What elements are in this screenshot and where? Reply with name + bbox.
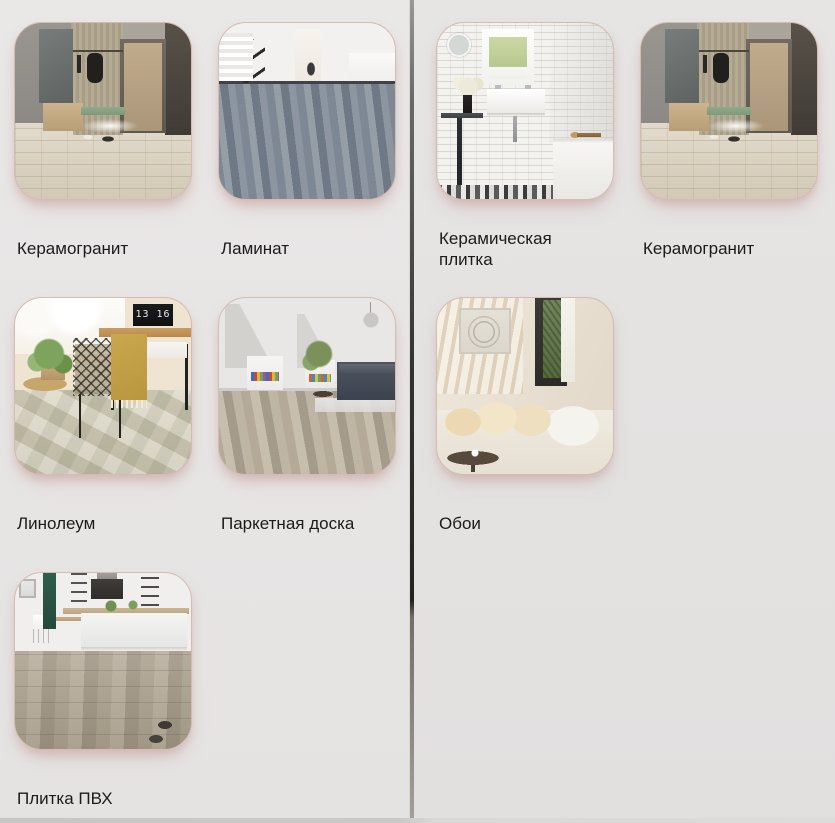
material-label: Паркетная доска: [221, 513, 354, 534]
material-item: Паркетная доска: [218, 297, 396, 572]
material-tile-parquet[interactable]: [218, 297, 396, 475]
material-item: Ламинат: [218, 22, 396, 297]
material-tile-hallway[interactable]: [14, 22, 192, 200]
material-tile-hallway[interactable]: [640, 22, 818, 200]
material-item: 13 16 Линолеум: [14, 297, 192, 572]
material-tile-linoleum[interactable]: 13 16: [14, 297, 192, 475]
left-screenshot-panel: Керамогранит Ламинат 13 16 Линолеум Парк…: [0, 0, 409, 823]
material-label-zone: Линолеум: [14, 475, 192, 572]
material-label-zone: Паркетная доска: [218, 475, 396, 572]
material-tile-wallpaper[interactable]: [436, 297, 614, 475]
material-tile-pvc[interactable]: [14, 572, 192, 750]
materials-grid-right: Керамическая плитка Керамогранит Обои: [436, 22, 835, 572]
material-item: Керамогранит: [640, 22, 818, 297]
material-label: Керамическая плитка: [439, 228, 594, 270]
clock-display: 13 16: [133, 304, 173, 326]
material-item: Плитка ПВХ: [14, 572, 192, 823]
right-screenshot-panel: Керамическая плитка Керамогранит Обои: [414, 0, 835, 823]
material-label: Ламинат: [221, 238, 289, 259]
material-label: Плитка ПВХ: [17, 788, 113, 809]
comparison-view: Керамогранит Ламинат 13 16 Линолеум Парк…: [0, 0, 835, 823]
material-tile-bathroom[interactable]: [436, 22, 614, 200]
material-label: Обои: [439, 513, 481, 534]
material-label: Линолеум: [17, 513, 95, 534]
material-label-zone: Керамогранит: [14, 200, 192, 297]
material-label: Керамогранит: [643, 238, 754, 259]
material-label-zone: Плитка ПВХ: [14, 750, 192, 823]
material-item: Керамическая плитка: [436, 22, 614, 297]
materials-grid-left: Керамогранит Ламинат 13 16 Линолеум Парк…: [14, 22, 409, 823]
material-label-zone: Керамическая плитка: [436, 200, 614, 297]
material-label-zone: Керамогранит: [640, 200, 818, 297]
material-label: Керамогранит: [17, 238, 128, 259]
material-label-zone: Обои: [436, 475, 614, 572]
material-tile-laminate[interactable]: [218, 22, 396, 200]
material-item: Обои: [436, 297, 614, 572]
material-label-zone: Ламинат: [218, 200, 396, 297]
material-item: Керамогранит: [14, 22, 192, 297]
bottom-edge-strip: [0, 818, 835, 823]
